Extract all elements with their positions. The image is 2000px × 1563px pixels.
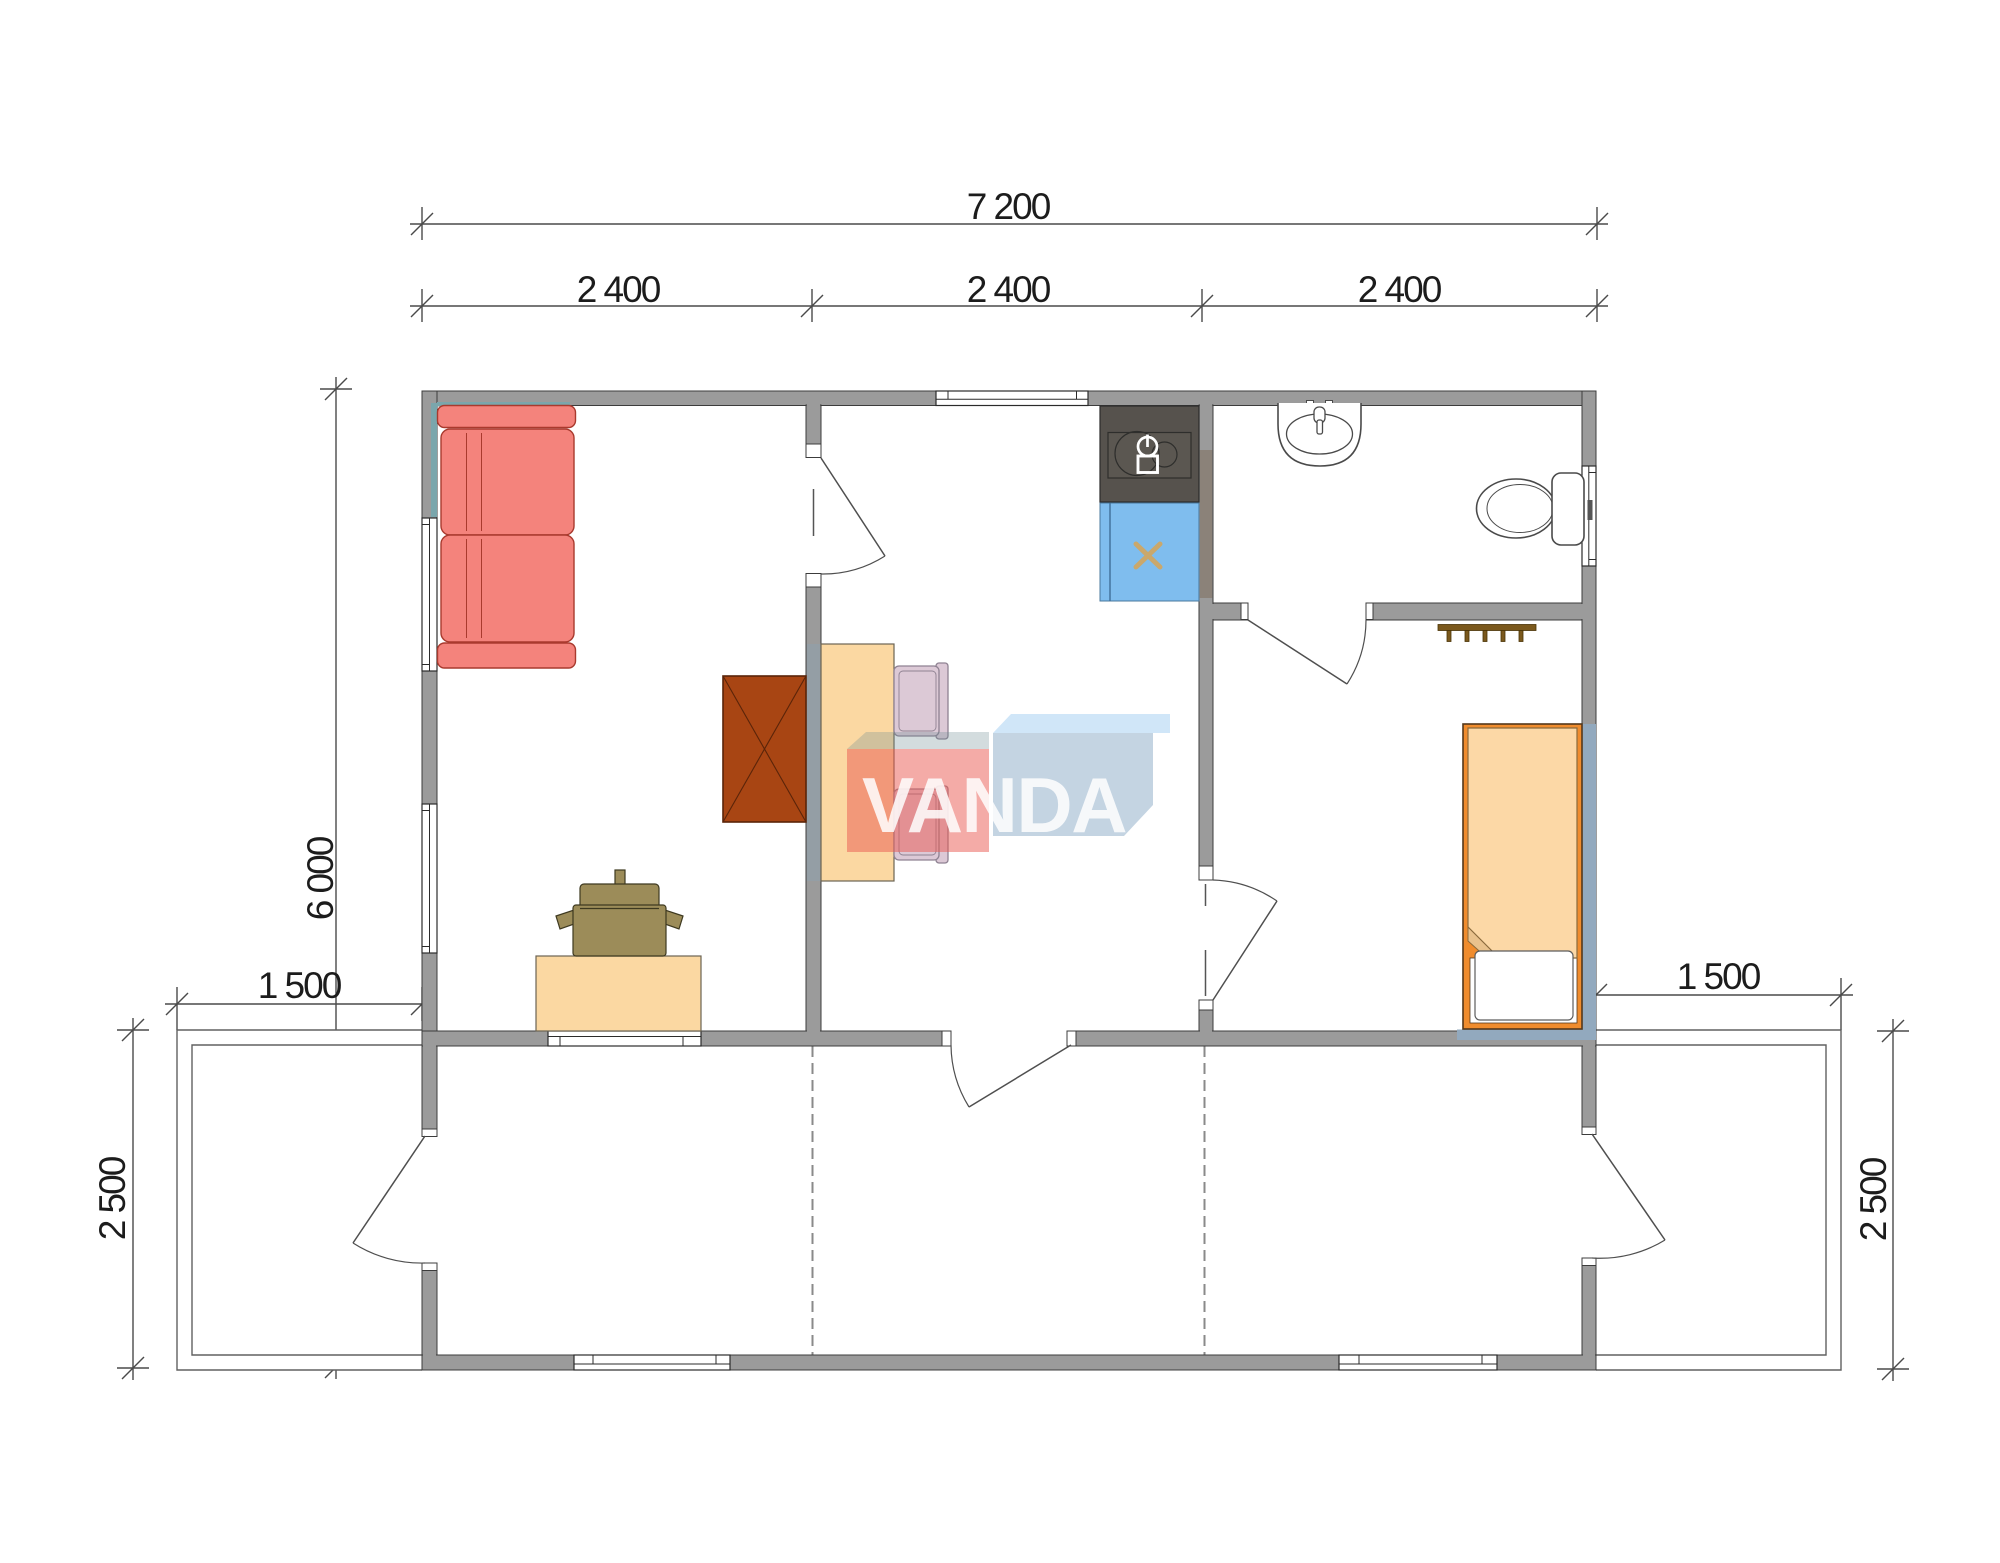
svg-text:VANDA: VANDA [862, 761, 1126, 849]
svg-text:1 500: 1 500 [258, 965, 342, 1006]
svg-text:7 200: 7 200 [967, 186, 1051, 227]
svg-text:1 500: 1 500 [1677, 956, 1761, 997]
svg-text:2 400: 2 400 [577, 269, 661, 310]
svg-text:2 500: 2 500 [1853, 1157, 1894, 1241]
svg-text:2 500: 2 500 [92, 1156, 133, 1240]
svg-text:2 400: 2 400 [967, 269, 1051, 310]
svg-text:2 400: 2 400 [1358, 269, 1442, 310]
svg-text:6 000: 6 000 [300, 836, 341, 920]
